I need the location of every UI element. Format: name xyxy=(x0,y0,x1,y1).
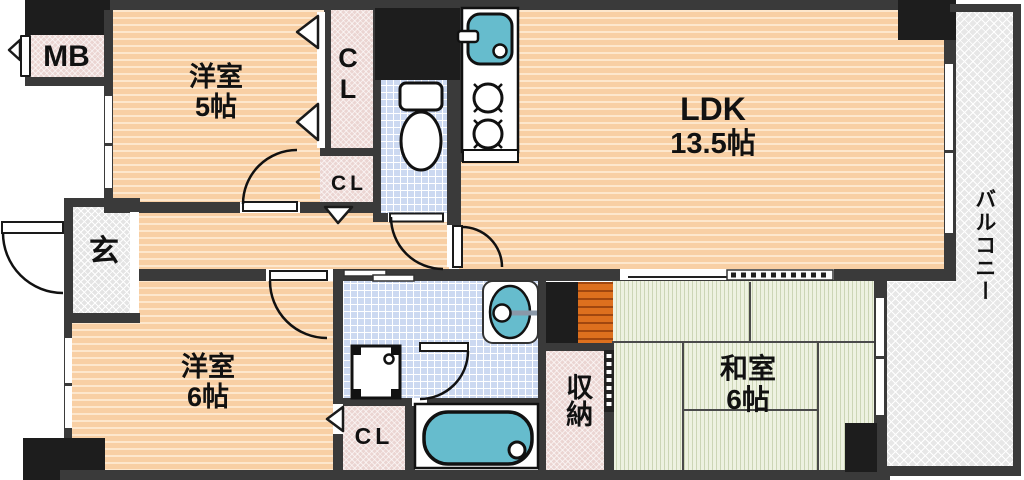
door-leaf xyxy=(390,214,443,222)
room-size: 6帖 xyxy=(187,382,229,412)
washbasin-icon xyxy=(483,281,538,343)
closet-letter: L xyxy=(340,74,357,104)
toilet-icon xyxy=(400,83,442,170)
room-name: LDK xyxy=(680,92,746,128)
closet-mid-label: CL xyxy=(320,168,378,200)
room-size: 5帖 xyxy=(195,92,237,122)
room-western5-label: 洋室 5帖 xyxy=(130,42,302,142)
door-swing xyxy=(420,351,468,399)
storage-label: 収納 xyxy=(558,330,596,470)
door-leaf xyxy=(420,343,468,351)
floorplan: MB 洋室 5帖 C L CL LDK 13.5帖 バルコニー 玄 洋室 6帖 … xyxy=(0,0,1024,480)
door-leaf xyxy=(270,271,327,280)
meter-box-label: MB xyxy=(28,35,105,78)
door-swing xyxy=(462,227,502,267)
balcony-label: バルコニー xyxy=(963,155,1005,335)
room-western6-label: 洋室 6帖 xyxy=(120,332,296,432)
room-name: 和室 xyxy=(720,353,776,384)
washing-machine-icon xyxy=(352,346,400,398)
entry-label: 玄 xyxy=(80,232,128,272)
room-size: 13.5帖 xyxy=(670,128,755,160)
closet-bottom-label: CL xyxy=(341,420,407,454)
faucet-icon xyxy=(458,31,478,42)
entry-door-swing xyxy=(3,233,63,293)
door-swing xyxy=(270,281,327,338)
door-swing xyxy=(391,217,443,269)
closet-letter: C xyxy=(338,43,358,73)
door-leaf xyxy=(243,202,297,211)
room-ldk-label: LDK 13.5帖 xyxy=(613,80,813,172)
room-name: 洋室 xyxy=(181,352,235,382)
room-size: 6帖 xyxy=(726,384,770,415)
kitchen-counter xyxy=(458,8,518,162)
door-leaf xyxy=(453,226,462,267)
closet-top-label: C L xyxy=(330,26,366,121)
entry-door-leaf xyxy=(2,222,63,233)
door-swing xyxy=(243,150,297,204)
room-name: 洋室 xyxy=(189,62,243,92)
room-tatami-label: 和室 6帖 xyxy=(660,336,836,432)
bathtub-icon xyxy=(415,404,538,468)
